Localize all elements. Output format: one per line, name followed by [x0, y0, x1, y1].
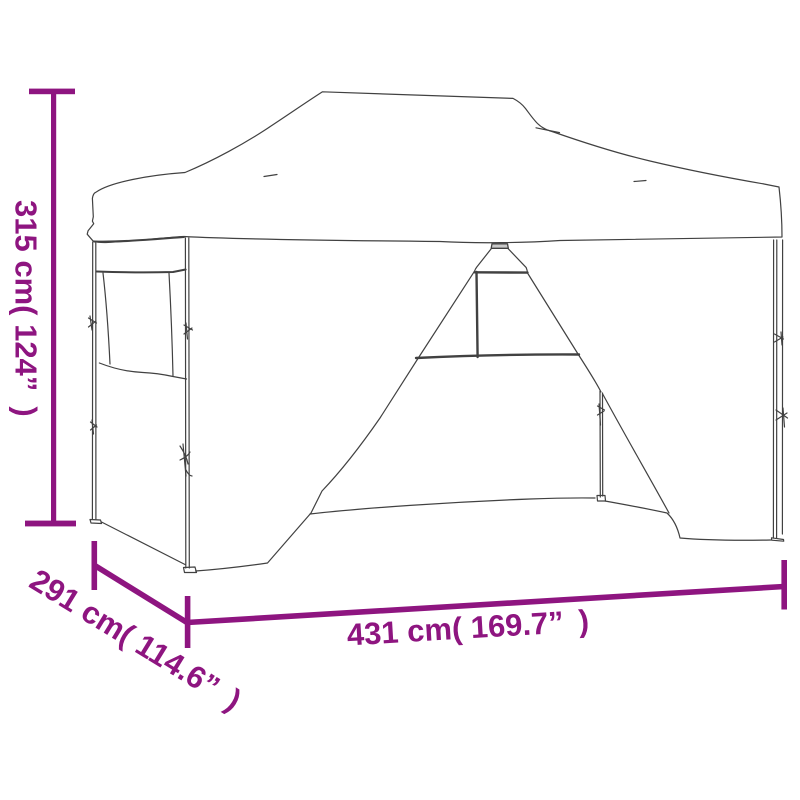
svg-text:315 cm( 124”): 315 cm( 124”): [9, 200, 44, 417]
